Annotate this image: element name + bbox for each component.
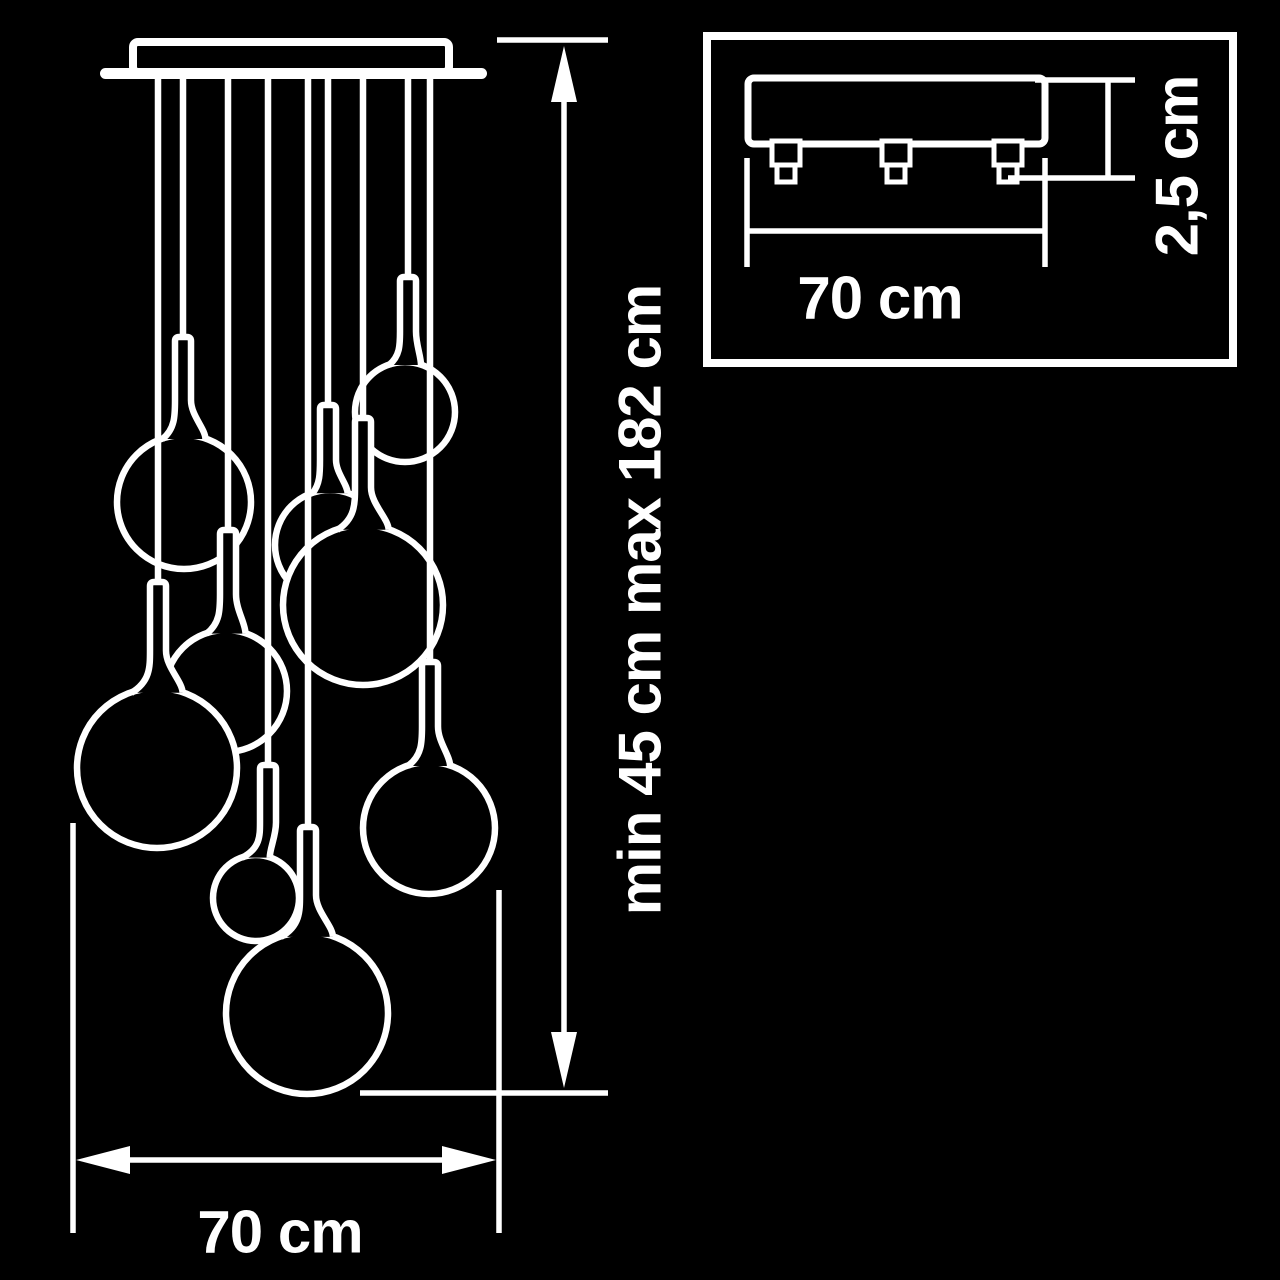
inset-mounting-foot — [772, 141, 800, 182]
inset-mounting-foot — [882, 141, 910, 182]
foot-upper — [772, 141, 800, 165]
pendant-p8 — [355, 76, 455, 462]
canopy-box — [133, 42, 449, 72]
pendant-p9 — [363, 76, 495, 894]
width-dim-arrow-right — [442, 1146, 496, 1174]
pendant-globe — [363, 762, 495, 894]
inset-ceiling-plate — [748, 78, 1045, 144]
foot-lower — [777, 165, 795, 182]
pendant-globe — [213, 855, 299, 941]
technical-drawing-page: min 45 cm max 182 cm 70 cm 70 cm 2,5 cm — [0, 0, 1280, 1280]
inset-base-width-label: 70 cm — [797, 264, 962, 333]
foot-upper — [994, 141, 1022, 165]
width-dim-arrow-left — [76, 1146, 130, 1174]
inset-base-thickness-label: 2,5 cm — [1143, 76, 1212, 257]
foot-upper — [882, 141, 910, 165]
height-dim-arrow-down — [551, 1032, 577, 1088]
height-range-label: min 45 cm max 182 cm — [606, 285, 675, 915]
height-dim-arrow-up — [551, 46, 577, 102]
pendant-globe — [226, 932, 388, 1094]
pendant-globe — [77, 688, 237, 848]
foot-lower — [887, 165, 905, 182]
fixture-width-label: 70 cm — [197, 1198, 362, 1267]
